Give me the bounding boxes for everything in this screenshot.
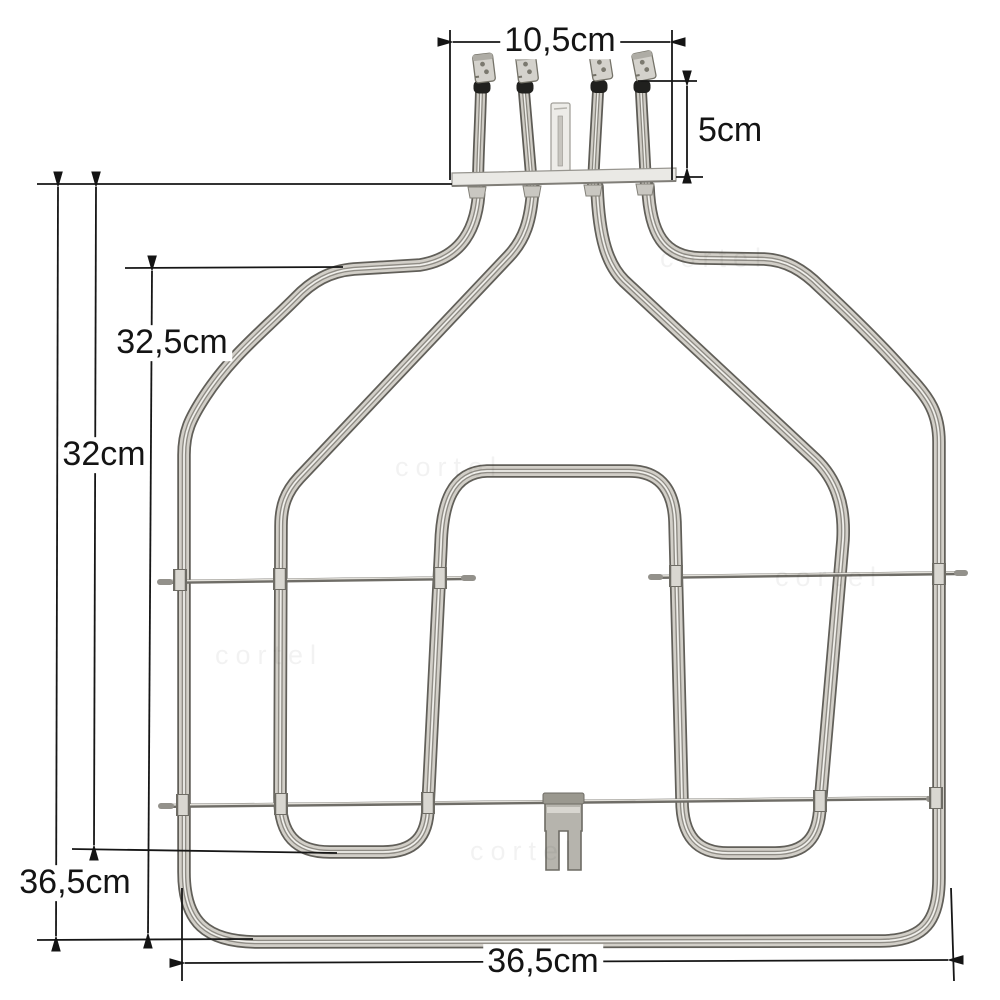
dim-label-terminal-block-width: 10,5cm — [500, 23, 620, 59]
dim-label-upper-bend-height: 32,5cm — [112, 325, 232, 361]
mounting-bracket — [543, 793, 584, 870]
heating-element-figure — [0, 0, 1000, 1000]
center-tab — [551, 103, 570, 175]
spade-lug — [632, 50, 657, 81]
inner-loop-tube — [280, 187, 843, 853]
spade-lug — [472, 53, 495, 83]
dim-label-inner-loop-height: 32cm — [58, 437, 149, 473]
flange-nut — [523, 186, 541, 197]
terminal-insulator — [591, 80, 608, 93]
dim-label-overall-width: 36,5cm — [483, 944, 603, 980]
terminal-insulator — [634, 80, 651, 93]
dim-label-terminal-pin-height: 5cm — [694, 113, 766, 149]
flange-nut — [468, 187, 486, 198]
flange-nut — [584, 185, 602, 196]
flange-nut — [636, 184, 654, 195]
dim-label-total-height: 36,5cm — [15, 865, 135, 901]
